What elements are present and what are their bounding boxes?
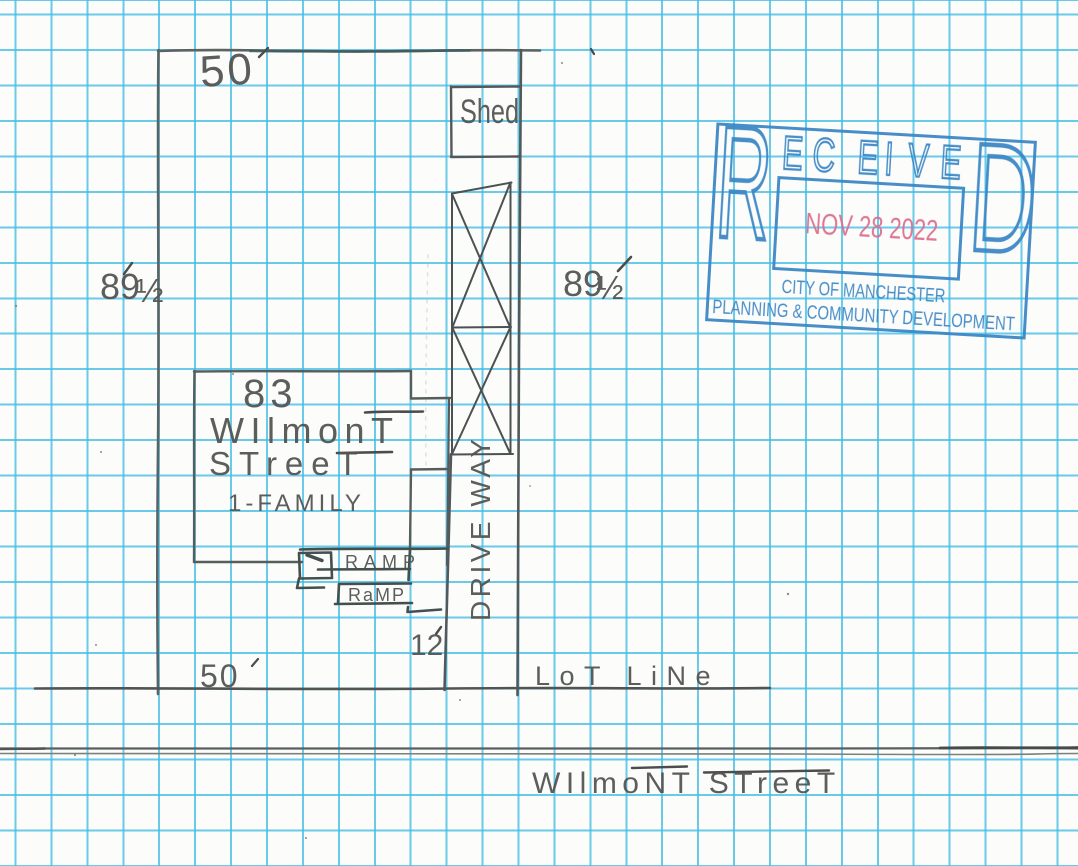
svg-text:E: E [939,137,963,190]
svg-text:WIlmoNT STreeT: WIlmoNT STreeT [532,767,841,800]
svg-text:I: I [883,133,895,185]
svg-text:E: E [781,127,805,180]
svg-text:Shed: Shed [460,93,519,131]
svg-text:RAMP: RAMP [345,552,421,572]
svg-text:E: E [856,132,880,185]
svg-text:LoT LiNe: LoT LiNe [535,661,720,691]
svg-text:1-FAMILY: 1-FAMILY [228,490,365,517]
svg-text:50: 50 [200,658,240,694]
svg-text:D: D [965,110,1041,286]
svg-text:12: 12 [410,629,443,662]
svg-text:NOV 28 2022: NOV 28 2022 [804,207,939,248]
svg-text:½: ½ [136,272,164,309]
svg-text:89: 89 [100,266,140,307]
svg-text:½: ½ [596,269,624,306]
svg-text:RaMP: RaMP [348,585,406,605]
svg-text:R: R [712,93,776,274]
svg-text:DRIVE WAY: DRIVE WAY [465,435,496,621]
svg-text:STreeT: STreeT [209,445,366,482]
svg-text:C: C [811,129,836,182]
svg-text:V: V [907,135,931,188]
svg-text:50: 50 [198,44,256,97]
